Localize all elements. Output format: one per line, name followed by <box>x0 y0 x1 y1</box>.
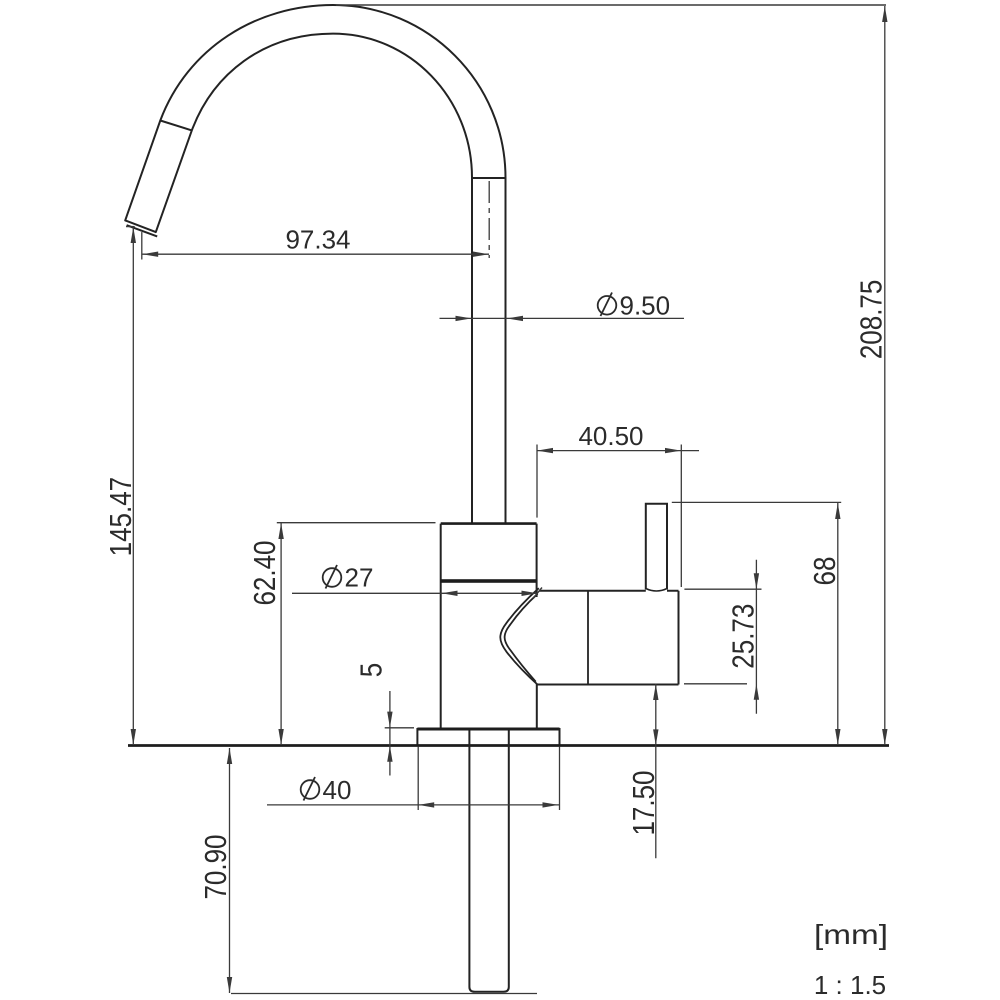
svg-text:62.40: 62.40 <box>248 540 283 605</box>
svg-text:9.50: 9.50 <box>620 291 671 321</box>
svg-text:1 : 1.5: 1 : 1.5 <box>814 970 886 1000</box>
svg-text:17.50: 17.50 <box>627 770 662 835</box>
svg-text:208.75: 208.75 <box>855 280 890 359</box>
svg-text:70.90: 70.90 <box>199 834 234 899</box>
svg-text:25.73: 25.73 <box>727 604 762 669</box>
svg-text:40: 40 <box>323 775 352 805</box>
svg-text:[mm]: [mm] <box>814 919 888 950</box>
svg-text:68: 68 <box>808 557 843 586</box>
svg-text:27: 27 <box>345 563 374 593</box>
svg-text:40.50: 40.50 <box>578 421 643 451</box>
svg-text:5: 5 <box>355 663 390 677</box>
svg-text:145.47: 145.47 <box>104 477 139 556</box>
svg-text:97.34: 97.34 <box>285 225 350 255</box>
